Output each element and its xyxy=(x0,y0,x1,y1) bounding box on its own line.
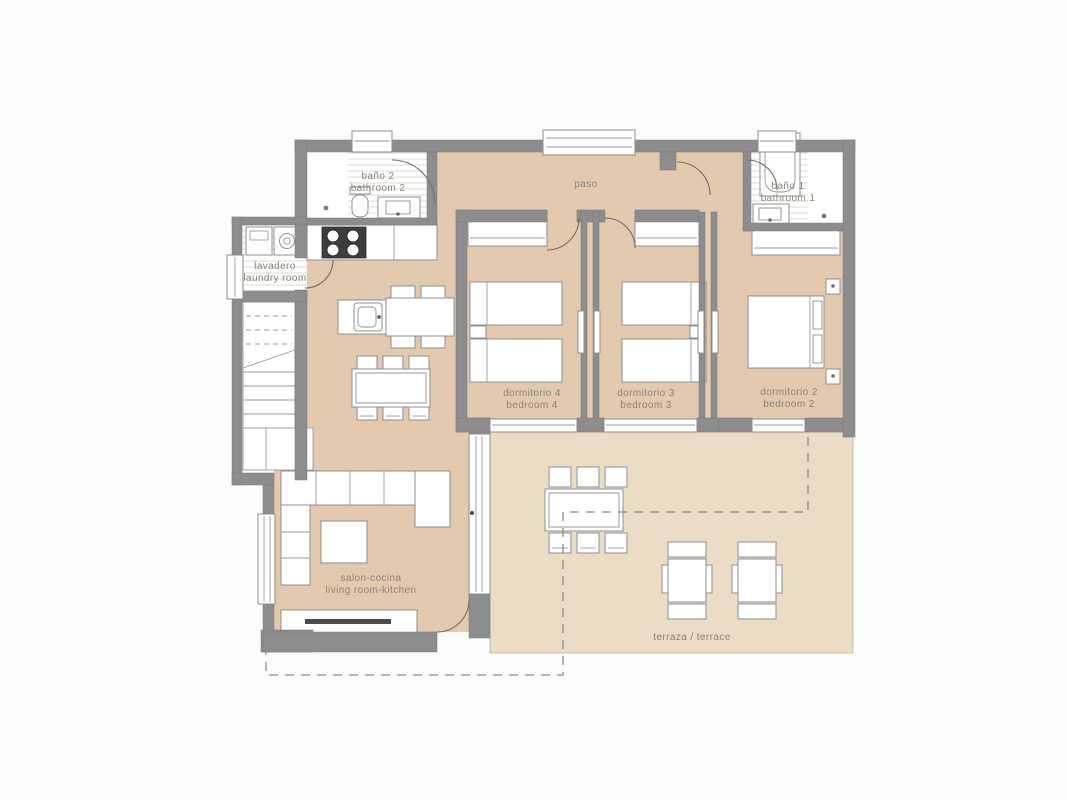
room-label-dormitorio2-es: dormitorio 2 xyxy=(760,387,818,398)
room-label-dormitorio4-es: dormitorio 4 xyxy=(503,388,561,399)
room-label-paso: paso xyxy=(574,179,597,190)
coffee-table xyxy=(321,521,367,563)
room-label-salon-en: living room-kitchen xyxy=(326,585,417,596)
room-label-lavadero-en: laundry room xyxy=(243,273,306,284)
room-label-bano2-es: baño 2 xyxy=(362,171,395,182)
terrace-table xyxy=(545,467,627,553)
sun-lounger-1 xyxy=(662,542,712,619)
room-label-lavadero-es: lavadero xyxy=(254,261,296,272)
room-label-salon-es: salon-cocina xyxy=(341,573,402,584)
kitchen-counter xyxy=(307,225,437,260)
sun-lounger-2 xyxy=(732,542,782,619)
window-living-left xyxy=(258,514,275,604)
room-label-bano1-es: baño 1 xyxy=(772,181,805,192)
room-label-terraza: terraza / terrace xyxy=(653,632,730,643)
window-top-bathroom2 xyxy=(352,131,392,152)
window-bedroom2 xyxy=(752,419,805,432)
window-laundry xyxy=(227,255,243,299)
room-label-dormitorio3-en: bedroom 3 xyxy=(620,400,671,411)
window-bedroom4 xyxy=(490,419,577,432)
bedroom3-furniture xyxy=(622,211,706,382)
room-label-bano2-en: bathroom 2 xyxy=(351,183,406,194)
room-label-dormitorio2-en: bedroom 2 xyxy=(763,399,814,410)
window-top-bathroom1 xyxy=(758,131,796,152)
room-label-bano1-en: bathroom 1 xyxy=(761,193,816,204)
room-label-dormitorio3-es: dormitorio 3 xyxy=(617,388,675,399)
floorplan-drawing: baño 2 bathroom 2 paso baño 1 bathroom 1… xyxy=(0,0,1067,800)
bathroom1-sink xyxy=(753,204,789,224)
floorplan-page: baño 2 bathroom 2 paso baño 1 bathroom 1… xyxy=(0,0,1067,800)
window-bedroom3 xyxy=(604,419,697,432)
dining-table xyxy=(352,356,430,420)
room-label-dormitorio4-en: bedroom 4 xyxy=(506,400,557,411)
glass-wall-living-terrace xyxy=(469,434,490,594)
window-top-paso xyxy=(543,130,635,155)
